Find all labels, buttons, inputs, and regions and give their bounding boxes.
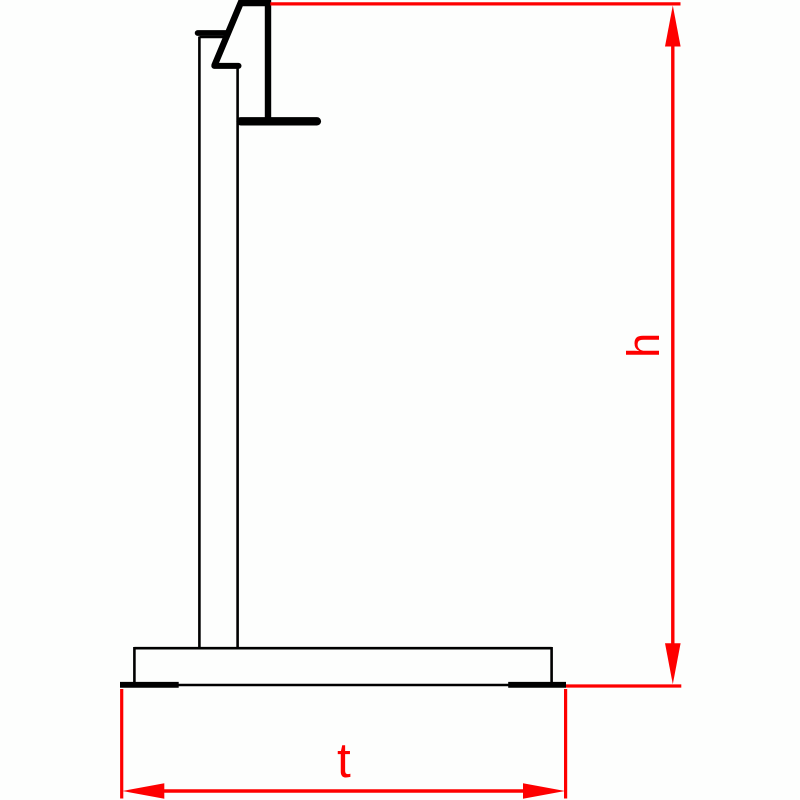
- svg-text:t: t: [337, 733, 351, 788]
- svg-text:h: h: [618, 333, 669, 358]
